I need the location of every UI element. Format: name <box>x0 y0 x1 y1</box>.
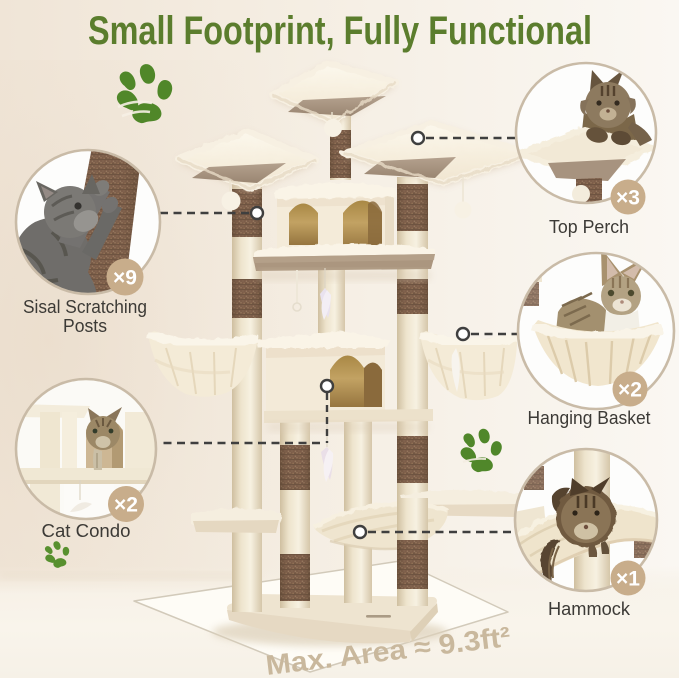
svg-text:Hammock: Hammock <box>548 598 631 619</box>
svg-text:Small Footprint, Fully Functio: Small Footprint, Fully Functional <box>88 9 592 53</box>
svg-text:Cat Condo: Cat Condo <box>42 520 131 541</box>
svg-text:Top Perch: Top Perch <box>549 216 629 237</box>
svg-text:×2: ×2 <box>114 494 138 517</box>
svg-text:Posts: Posts <box>63 315 107 336</box>
svg-text:×3: ×3 <box>616 187 640 210</box>
svg-text:×2: ×2 <box>618 379 642 402</box>
svg-text:Hanging Basket: Hanging Basket <box>528 407 651 428</box>
svg-text:×1: ×1 <box>616 568 640 591</box>
svg-text:Sisal Scratching: Sisal Scratching <box>23 296 147 317</box>
svg-text:×9: ×9 <box>113 267 137 290</box>
